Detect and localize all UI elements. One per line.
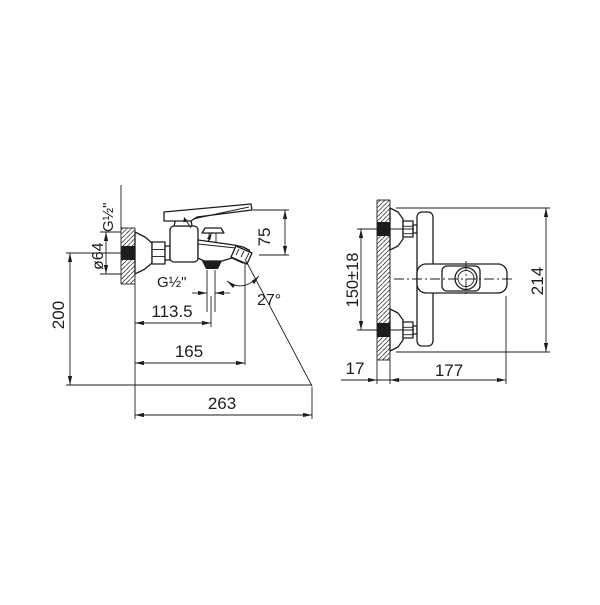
dim-label-mount-height: 200 [49,301,68,329]
dim-mount-height: 200 [49,253,122,385]
dim-label-body-projection: 177 [435,361,463,380]
dim-label-wall-to-outlet: 113.5 [151,302,192,321]
dim-label-spout-angle: 27° [257,292,281,309]
dim-label-handle-height: 75 [255,228,274,247]
dim-label-max-reach: 263 [208,394,236,413]
dim-label-wall-to-spout-tip: 165 [175,342,203,361]
dim-wall-to-outlet: 113.5 [135,302,211,325]
technical-drawing-page: G½" ø64 200 75 [0,0,600,600]
inlet-nut-side [152,242,165,264]
diverter-knob [202,228,224,233]
wall-anchor-square [122,246,136,260]
dim-label-wall-depth: 17 [346,359,365,378]
lever-handle [164,204,252,221]
dim-handle-height: 75 [253,210,289,255]
dim-label-overall-length: 214 [528,267,547,295]
spout-angle-annotation: 27° [227,259,312,386]
mixer-body-side [170,226,198,262]
dim-label-outlet-thread: G½" [157,274,187,291]
shower-outlet-port [202,261,222,269]
dim-label-inlet-thread: G½" [100,202,117,232]
wall-section-side [121,185,135,419]
escutcheon-side [135,232,152,274]
side-view: G½" ø64 200 75 [49,185,312,419]
wall-section-top [377,200,390,384]
top-view: 150±18 214 17 177 [341,200,550,384]
faucet-side [135,204,252,274]
dim-label-inlet-spacing: 150±18 [344,253,362,308]
technical-drawing-canvas: G½" ø64 200 75 [0,0,600,600]
dim-max-reach: 263 [66,385,312,419]
dim-label-flange-diameter: ø64 [90,242,107,270]
